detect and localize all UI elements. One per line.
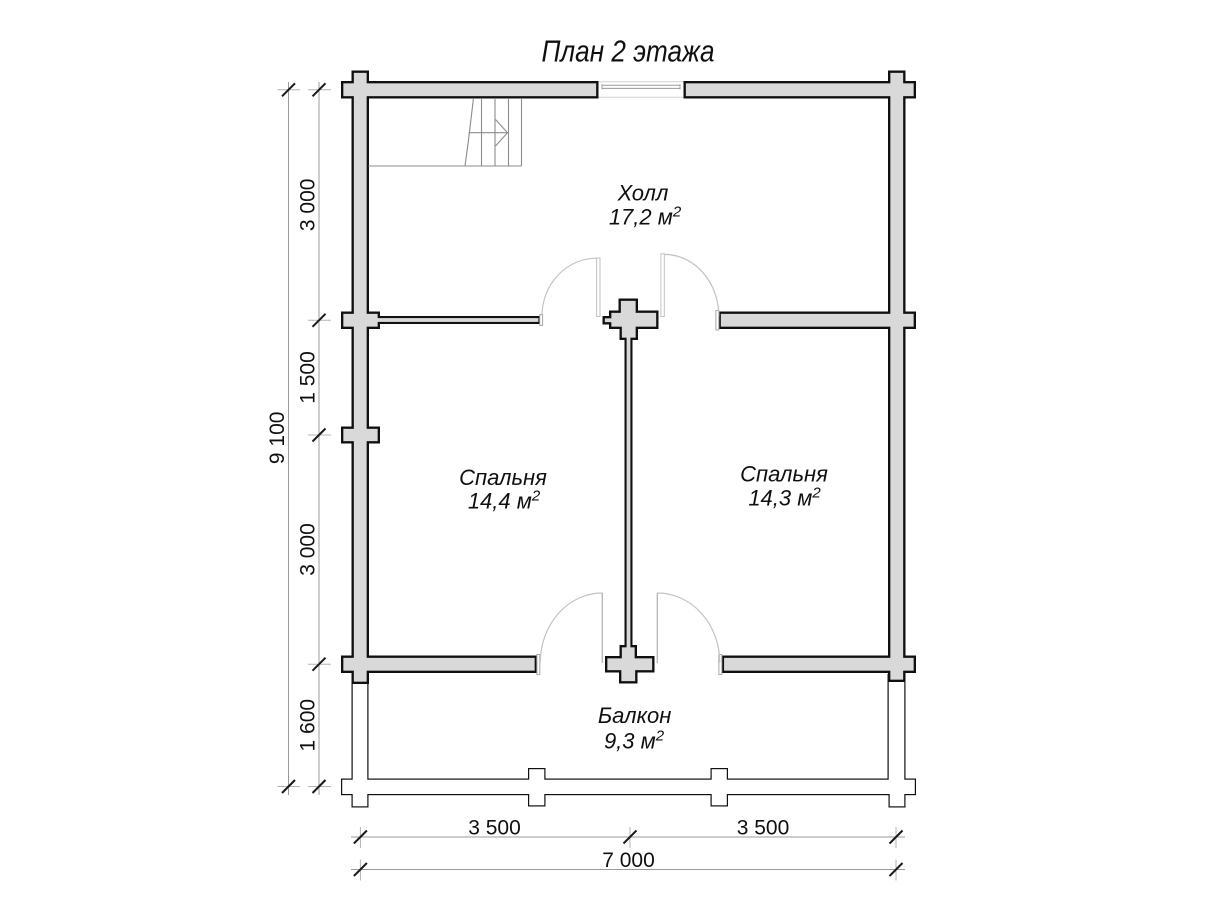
svg-text:3 000: 3 000	[297, 523, 320, 576]
svg-text:14,3 м2: 14,3 м2	[748, 485, 821, 511]
svg-text:7 000: 7 000	[602, 849, 655, 872]
svg-text:Спальня: Спальня	[740, 462, 828, 487]
svg-text:3 500: 3 500	[737, 817, 790, 840]
svg-text:9 100: 9 100	[266, 412, 289, 465]
svg-text:3 000: 3 000	[297, 179, 320, 232]
svg-text:Спальня: Спальня	[459, 465, 547, 490]
svg-text:1 500: 1 500	[297, 351, 320, 404]
svg-text:Холл: Холл	[617, 181, 669, 206]
svg-text:План 2 этажа: План 2 этажа	[542, 34, 715, 69]
svg-text:14,4 м2: 14,4 м2	[468, 488, 541, 514]
svg-text:Балкон: Балкон	[598, 703, 671, 728]
svg-text:9,3 м2: 9,3 м2	[604, 728, 665, 754]
svg-text:1 600: 1 600	[297, 699, 320, 752]
svg-text:17,2 м2: 17,2 м2	[609, 204, 682, 230]
svg-text:3 500: 3 500	[468, 817, 521, 840]
